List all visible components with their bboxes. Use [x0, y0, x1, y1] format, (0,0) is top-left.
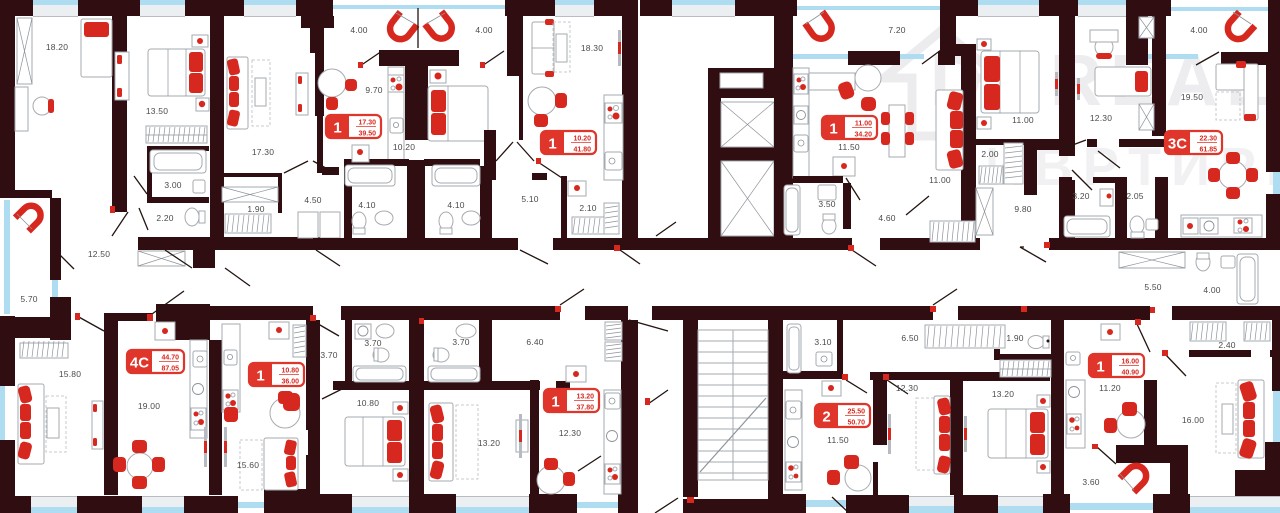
svg-text:39.50: 39.50: [358, 131, 376, 138]
svg-text:1: 1: [551, 394, 559, 411]
svg-text:9.80: 9.80: [1014, 204, 1031, 214]
svg-text:4.10: 4.10: [358, 200, 375, 210]
svg-text:3.70: 3.70: [452, 337, 469, 347]
svg-text:34.20: 34.20: [854, 132, 872, 139]
svg-text:4.10: 4.10: [447, 200, 464, 210]
svg-text:3.70: 3.70: [364, 338, 381, 348]
svg-text:4.60: 4.60: [878, 213, 895, 223]
svg-text:40.90: 40.90: [1121, 370, 1139, 377]
svg-text:1.90: 1.90: [1006, 333, 1023, 343]
svg-text:1.90: 1.90: [247, 204, 264, 214]
svg-text:3.60: 3.60: [1082, 477, 1099, 487]
svg-text:4.00: 4.00: [475, 25, 492, 35]
svg-text:6.50: 6.50: [901, 333, 918, 343]
svg-text:19.00: 19.00: [138, 401, 160, 411]
svg-text:11.50: 11.50: [827, 435, 849, 445]
svg-text:3.10: 3.10: [814, 337, 831, 347]
svg-text:41.80: 41.80: [573, 147, 591, 154]
svg-text:11.00: 11.00: [929, 175, 951, 185]
svg-text:11.00: 11.00: [1012, 115, 1034, 125]
svg-text:15.60: 15.60: [237, 460, 259, 470]
svg-text:1: 1: [1096, 359, 1104, 376]
svg-text:3.50: 3.50: [818, 199, 835, 209]
svg-text:11.00: 11.00: [855, 121, 872, 128]
svg-text:3.00: 3.00: [164, 180, 181, 190]
svg-text:2.00: 2.00: [981, 149, 998, 159]
svg-text:18.20: 18.20: [46, 42, 68, 52]
svg-text:13.20: 13.20: [992, 389, 1014, 399]
svg-text:11.20: 11.20: [1099, 383, 1121, 393]
svg-text:36.00: 36.00: [281, 379, 299, 386]
svg-text:2.10: 2.10: [579, 203, 596, 213]
svg-text:3.20: 3.20: [1072, 191, 1089, 201]
svg-text:3C: 3C: [1168, 136, 1187, 153]
svg-text:10.80: 10.80: [281, 368, 299, 375]
svg-text:5.50: 5.50: [1144, 282, 1161, 292]
svg-text:11.50: 11.50: [838, 142, 860, 152]
svg-text:13.50: 13.50: [146, 106, 168, 116]
svg-text:4.50: 4.50: [304, 195, 321, 205]
svg-text:87.05: 87.05: [161, 366, 179, 373]
svg-text:10.80: 10.80: [357, 398, 379, 408]
svg-text:9.70: 9.70: [365, 85, 382, 95]
svg-text:50.70: 50.70: [847, 420, 865, 427]
svg-text:12.30: 12.30: [896, 383, 918, 393]
svg-text:61.85: 61.85: [1199, 147, 1217, 154]
svg-text:5.10: 5.10: [521, 194, 538, 204]
svg-text:13.20: 13.20: [478, 438, 500, 448]
svg-text:5.70: 5.70: [20, 294, 37, 304]
svg-text:15.80: 15.80: [59, 369, 81, 379]
svg-text:2.05: 2.05: [1126, 191, 1143, 201]
svg-text:4C: 4C: [130, 355, 149, 372]
svg-text:4.00: 4.00: [350, 25, 367, 35]
svg-text:37.80: 37.80: [576, 405, 594, 412]
svg-text:12.30: 12.30: [1090, 113, 1112, 123]
svg-text:4.00: 4.00: [1203, 285, 1220, 295]
svg-text:25.50: 25.50: [847, 409, 865, 416]
svg-text:13.20: 13.20: [576, 394, 594, 401]
svg-text:18.30: 18.30: [581, 43, 603, 53]
svg-text:12.30: 12.30: [559, 428, 581, 438]
svg-text:1: 1: [256, 368, 264, 385]
svg-text:16.00: 16.00: [1121, 359, 1139, 366]
svg-text:2: 2: [822, 409, 830, 426]
svg-text:17.30: 17.30: [358, 120, 376, 127]
svg-text:3.70: 3.70: [320, 350, 337, 360]
svg-text:1: 1: [333, 120, 341, 137]
svg-text:1: 1: [829, 121, 837, 138]
svg-text:2.40: 2.40: [1218, 340, 1235, 350]
svg-text:7.20: 7.20: [888, 25, 905, 35]
svg-text:16.00: 16.00: [1182, 415, 1204, 425]
svg-text:12.50: 12.50: [88, 249, 110, 259]
svg-text:6.40: 6.40: [526, 337, 543, 347]
svg-text:2.20: 2.20: [156, 213, 173, 223]
svg-text:22.30: 22.30: [1199, 136, 1217, 143]
svg-text:10.20: 10.20: [573, 136, 591, 143]
svg-text:19.50: 19.50: [1181, 92, 1203, 102]
svg-text:1: 1: [548, 136, 556, 153]
svg-text:44.70: 44.70: [161, 355, 179, 362]
svg-text:4.00: 4.00: [1190, 25, 1207, 35]
svg-text:10.20: 10.20: [393, 142, 415, 152]
svg-text:17.30: 17.30: [252, 147, 274, 157]
